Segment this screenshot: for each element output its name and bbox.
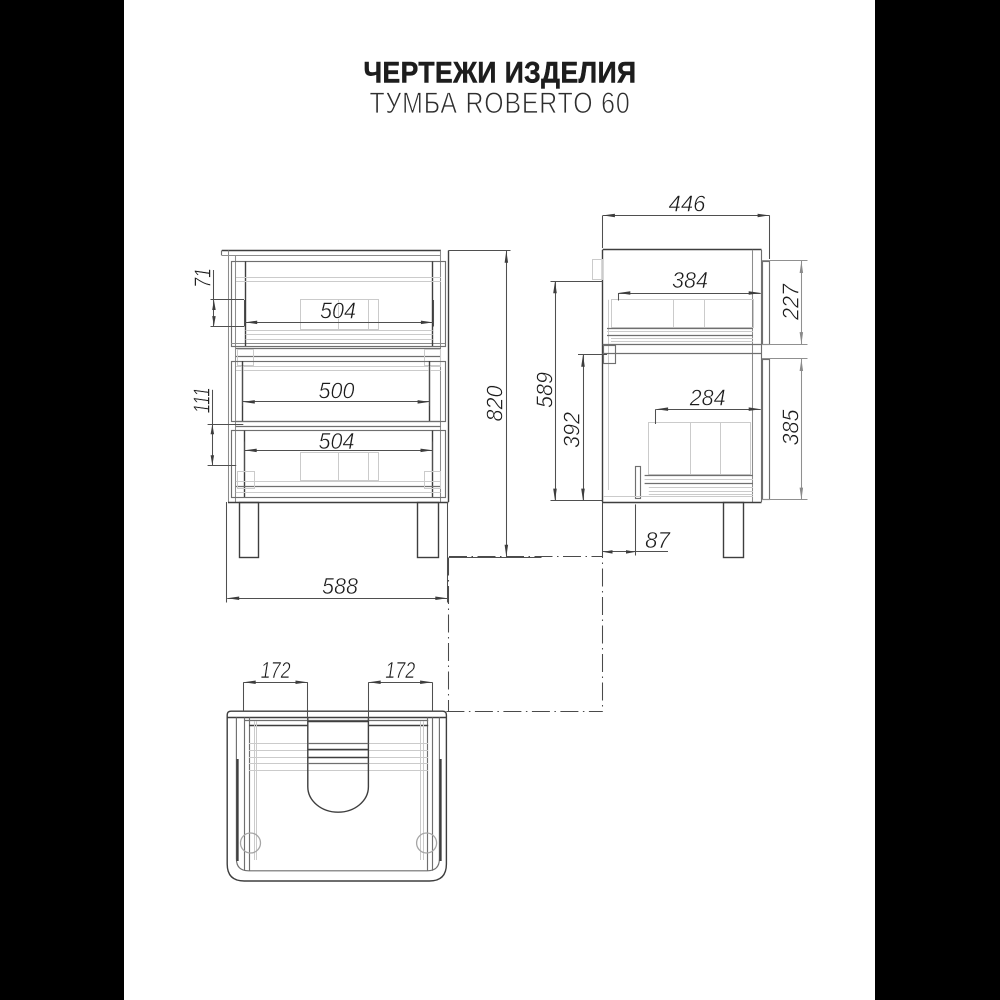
- svg-text:172: 172: [385, 657, 415, 683]
- svg-text:446: 446: [669, 191, 706, 217]
- svg-text:384: 384: [672, 267, 708, 293]
- svg-text:392: 392: [559, 412, 585, 448]
- svg-text:504: 504: [319, 428, 355, 454]
- svg-text:588: 588: [322, 573, 358, 599]
- svg-text:87: 87: [645, 527, 671, 553]
- svg-text:ТУМБА ROBERTO 60: ТУМБА ROBERTO 60: [370, 87, 631, 120]
- svg-text:589: 589: [532, 372, 558, 408]
- svg-text:500: 500: [319, 378, 355, 404]
- svg-text:71: 71: [190, 268, 216, 288]
- svg-text:172: 172: [261, 657, 291, 683]
- svg-text:385: 385: [778, 409, 804, 445]
- svg-text:284: 284: [689, 384, 726, 410]
- svg-text:227: 227: [778, 283, 804, 321]
- svg-text:ЧЕРТЕЖИ ИЗДЕЛИЯ: ЧЕРТЕЖИ ИЗДЕЛИЯ: [364, 57, 637, 90]
- svg-text:111: 111: [189, 387, 215, 413]
- svg-text:504: 504: [320, 298, 356, 324]
- svg-text:820: 820: [481, 385, 507, 421]
